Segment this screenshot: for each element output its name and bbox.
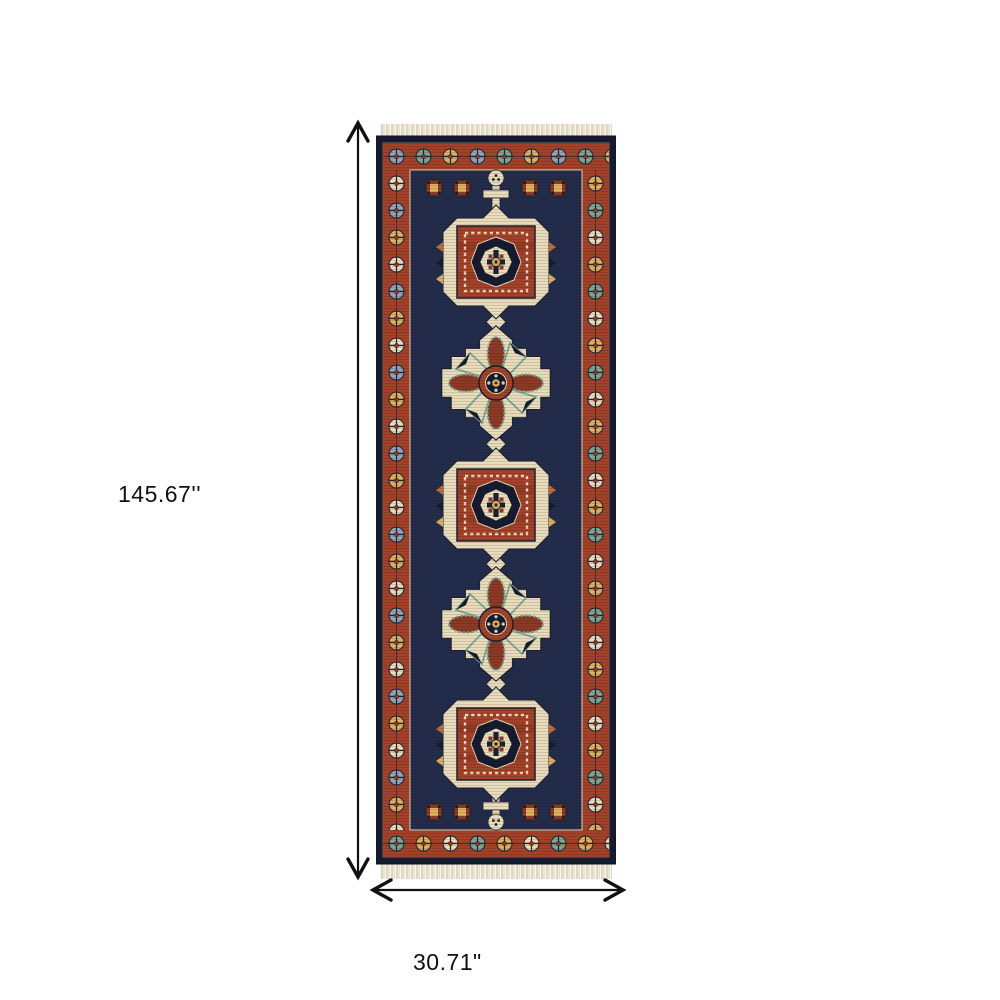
width-dimension-arrow-icon xyxy=(373,880,623,900)
height-dimension-arrow-icon xyxy=(348,123,368,877)
width-dimension-label: 30.71" xyxy=(413,949,482,976)
height-dimension-label: 145.67'' xyxy=(118,481,201,508)
product-dimension-diagram: 145.67'' 30.71" xyxy=(0,0,1000,1000)
